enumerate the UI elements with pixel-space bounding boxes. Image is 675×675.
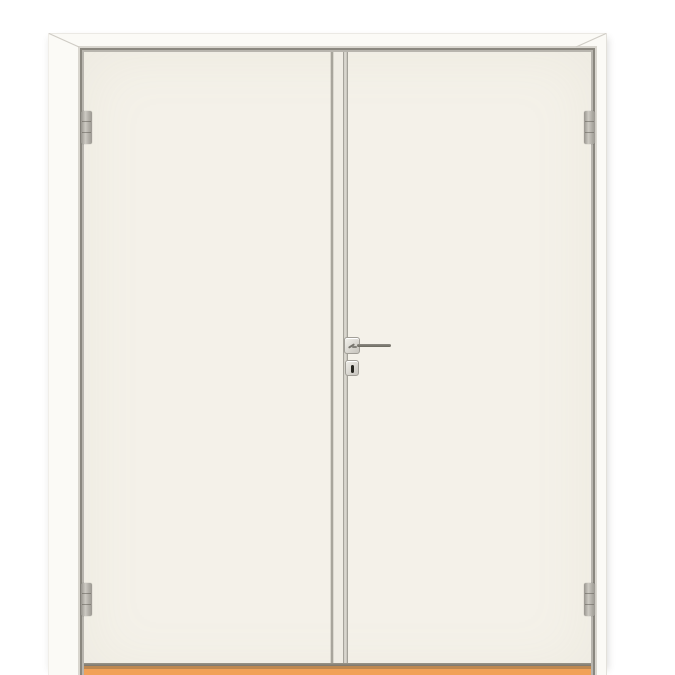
keyhole-escutcheon [345, 360, 359, 376]
hinge-knuckle [82, 604, 91, 605]
leaf-gap [343, 52, 348, 663]
meeting-stile [334, 52, 343, 663]
threshold-sill [84, 669, 591, 675]
door-leaves [84, 52, 591, 675]
hinge-knuckle [585, 132, 594, 133]
keyhole-icon [351, 365, 354, 373]
hinge-knuckle [585, 604, 594, 605]
hinge-knuckle [82, 593, 91, 594]
hinge-knuckle [82, 121, 91, 122]
bottom-right-hinge-icon [584, 583, 595, 616]
hinge-knuckle [82, 132, 91, 133]
top-right-hinge-icon [584, 111, 595, 144]
lever-handle-icon [357, 344, 391, 347]
hinge-knuckle [585, 593, 594, 594]
door-product-image [0, 0, 675, 675]
hinge-knuckle [585, 121, 594, 122]
bottom-left-hinge-icon [81, 583, 92, 616]
top-left-hinge-icon [81, 111, 92, 144]
